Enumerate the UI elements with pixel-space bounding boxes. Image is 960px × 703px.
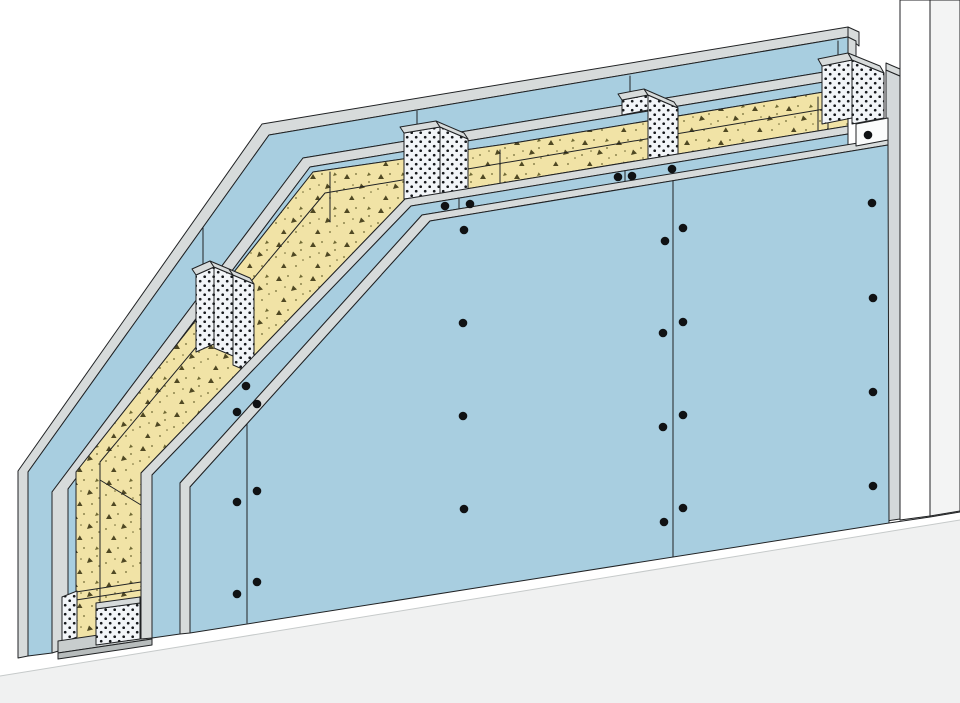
screw-dot [659, 329, 668, 338]
screw-dot [253, 578, 262, 587]
existing-wall-face [930, 0, 960, 516]
screw-dot [233, 498, 242, 507]
screw-dot [460, 226, 469, 235]
track-back-flange [62, 591, 77, 643]
partition-wall-cutaway-drawing [0, 0, 960, 703]
screw-dot [459, 412, 468, 421]
existing-wall-reveal [900, 0, 930, 520]
screw-dot [459, 319, 468, 328]
screw-dot [614, 173, 623, 182]
diagram-page [0, 0, 960, 703]
screw-dot [679, 224, 688, 233]
screw-dot [869, 388, 878, 397]
screw-dot [628, 172, 637, 181]
screw-dot [679, 411, 688, 420]
stud-mid-flange [404, 127, 440, 199]
screw-dot [460, 505, 469, 514]
drawing-layers [0, 0, 960, 703]
screw-dot [869, 482, 878, 491]
screw-dot [868, 199, 877, 208]
screw-dot [864, 131, 873, 140]
screw-dot [679, 504, 688, 513]
screw-dot [679, 318, 688, 327]
screw-dot [441, 202, 450, 211]
screw-dot [660, 518, 669, 527]
screw-dot [253, 400, 262, 409]
corner-stud-left-face [822, 60, 852, 124]
screw-dot [668, 165, 677, 174]
screw-dot [233, 590, 242, 599]
screw-dot [659, 423, 668, 432]
screw-dot [242, 382, 251, 391]
wall-assembly-figure [0, 0, 960, 703]
stud-base-section [96, 603, 140, 645]
layer-existing-wall [886, 0, 960, 521]
screw-dot [253, 487, 262, 496]
stud-left-web [214, 267, 233, 356]
screw-dot [466, 200, 475, 209]
stud-left-flange [196, 267, 214, 352]
screw-dot [661, 237, 670, 246]
screw-dot [869, 294, 878, 303]
screw-dot [233, 408, 242, 417]
